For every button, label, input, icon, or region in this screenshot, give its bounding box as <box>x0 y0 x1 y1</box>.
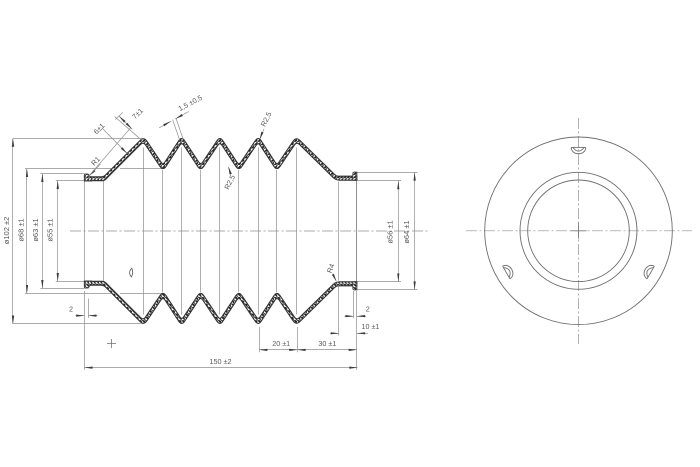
svg-text:ø102 ±2: ø102 ±2 <box>2 217 11 244</box>
svg-text:ø64 ±1: ø64 ±1 <box>402 220 411 243</box>
svg-text:ø55 ±1: ø55 ±1 <box>45 218 54 241</box>
svg-text:R1: R1 <box>89 155 102 168</box>
svg-text:R2,5: R2,5 <box>259 110 274 128</box>
svg-text:150 ±2: 150 ±2 <box>210 357 232 366</box>
svg-text:2: 2 <box>366 305 370 314</box>
svg-text:10 ±1: 10 ±1 <box>362 322 380 331</box>
svg-text:20 ±1: 20 ±1 <box>272 339 290 348</box>
svg-text:R2,5: R2,5 <box>222 173 237 191</box>
svg-text:6±1: 6±1 <box>92 121 107 136</box>
svg-text:2: 2 <box>69 305 73 314</box>
svg-text:7±1: 7±1 <box>130 106 145 121</box>
svg-text:ø68 ±1: ø68 ±1 <box>16 218 25 241</box>
svg-text:ø63 ±1: ø63 ±1 <box>31 218 40 241</box>
svg-text:30 ±1: 30 ±1 <box>318 339 336 348</box>
svg-text:1,5 ±0,5: 1,5 ±0,5 <box>177 93 204 113</box>
svg-text:ø56 ±1: ø56 ±1 <box>385 220 394 243</box>
svg-text:R4: R4 <box>325 262 337 274</box>
